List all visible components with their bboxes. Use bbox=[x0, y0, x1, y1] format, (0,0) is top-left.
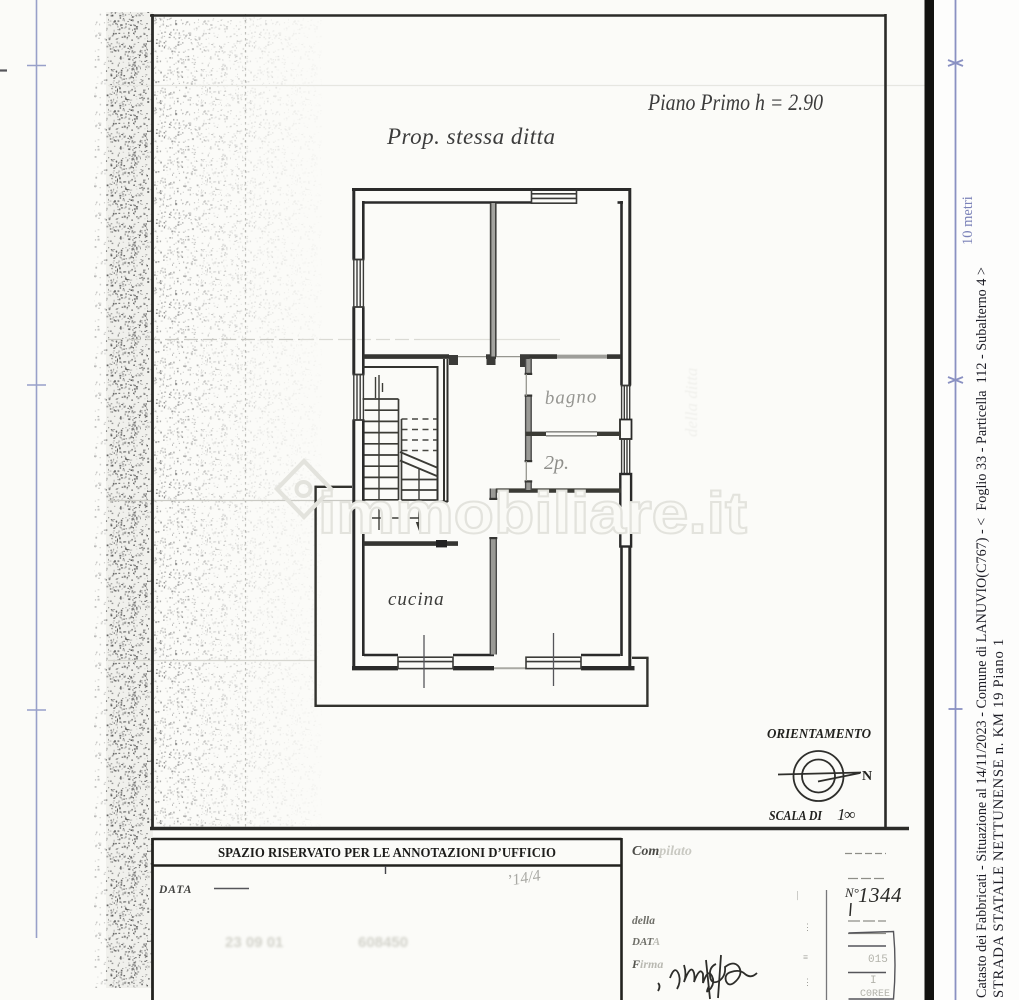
svg-text:Compilato: Compilato bbox=[632, 844, 692, 859]
svg-text:2p.: 2p. bbox=[544, 452, 569, 474]
svg-text:⋮: ⋮ bbox=[803, 977, 812, 987]
svg-text:della ditta: della ditta bbox=[682, 368, 701, 437]
svg-text:23 09 01: 23 09 01 bbox=[225, 934, 283, 951]
svg-text:N°: N° bbox=[844, 885, 859, 900]
svg-text:Piano Primo h = 2.90: Piano Primo h = 2.90 bbox=[647, 90, 823, 115]
svg-text:⋮: ⋮ bbox=[803, 922, 812, 932]
svg-text:ORIENTAMENTO: ORIENTAMENTO bbox=[767, 727, 871, 742]
svg-text:I: I bbox=[870, 975, 877, 987]
svg-text:DATA: DATA bbox=[631, 936, 660, 948]
svg-text:1344: 1344 bbox=[858, 883, 902, 907]
svg-text:bagno: bagno bbox=[544, 386, 597, 409]
svg-text:≡: ≡ bbox=[803, 952, 808, 962]
svg-text:DATA: DATA bbox=[158, 884, 192, 896]
svg-text:immobiliare.it: immobiliare.it bbox=[318, 481, 747, 546]
svg-text:—: — bbox=[792, 890, 802, 901]
svg-text:Prop. stessa ditta: Prop. stessa ditta bbox=[386, 124, 556, 149]
svg-text:∞: ∞ bbox=[844, 807, 855, 824]
svg-text:cucina: cucina bbox=[388, 589, 445, 610]
svg-text:N: N bbox=[862, 769, 872, 784]
svg-text:C0REE: C0REE bbox=[860, 989, 890, 1000]
svg-text:STRADA STATALE NETTUNENSE n. K: STRADA STATALE NETTUNENSE n. KM 19 Piano… bbox=[991, 638, 1007, 998]
svg-text:Catasto dei Fabbricati - Situa: Catasto dei Fabbricati - Situazione al 1… bbox=[974, 267, 990, 998]
svg-text:SCALA DI: SCALA DI bbox=[769, 808, 823, 823]
svg-text:608450: 608450 bbox=[358, 934, 408, 951]
svg-text:015: 015 bbox=[868, 954, 888, 966]
svg-text:della: della bbox=[632, 915, 655, 927]
svg-text:Firma: Firma bbox=[631, 957, 663, 971]
svg-text:SPAZIO RISERVATO PER LE ANNOTA: SPAZIO RISERVATO PER LE ANNOTAZIONI D’UF… bbox=[218, 845, 556, 860]
svg-text:10 metri: 10 metri bbox=[960, 196, 976, 245]
